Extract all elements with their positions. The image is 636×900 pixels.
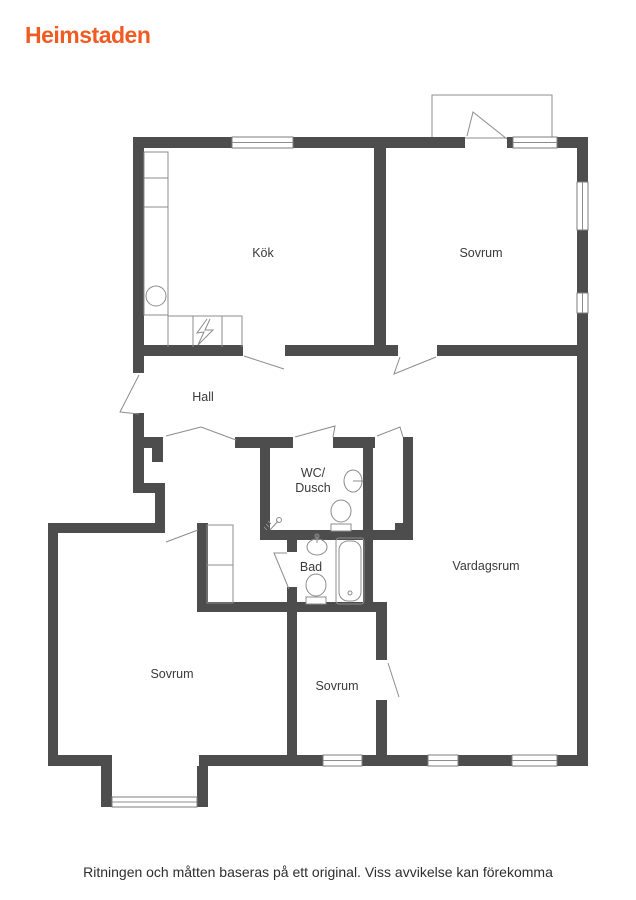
kitchen-counter [144,152,242,347]
hall-corridor-door [166,427,236,440]
window [232,137,293,148]
front-door [120,375,139,414]
window [513,137,557,148]
walls-layer [48,137,588,766]
window [323,755,362,766]
bedroom-bottom-left-door [166,530,198,542]
room-label-hall: Hall [192,390,214,404]
floorplan-page: Heimstaden [0,0,636,900]
room-label-bedroom-bottom-left: Sovrum [150,667,193,681]
kitchen-sink [146,286,166,306]
floor-plan: Kök Sovrum Hall WC/ Dusch Bad Vardagsrum… [0,0,636,900]
bedroom-bottom-middle-door [388,663,399,697]
window [577,293,588,313]
bathtub [336,538,364,604]
wc-toilet [331,500,351,531]
wardrobe [207,525,233,603]
room-label-wc-line2: Dusch [295,481,330,495]
bath-toilet [306,574,326,604]
room-label-living-room: Vardagsrum [452,559,519,573]
room-label-bedroom-top-right: Sovrum [459,246,502,260]
balcony [432,95,552,138]
bay-window [101,766,208,807]
labels-layer: Kök Sovrum Hall WC/ Dusch Bad Vardagsrum… [150,246,519,693]
closet-door [377,427,403,437]
room-label-bathroom: Bad [300,560,322,574]
stove-icon [197,319,213,345]
window [577,182,588,230]
wc-sink [344,470,363,492]
window [512,755,557,766]
disclaimer-text: Ritningen och måtten baseras på ett orig… [0,864,636,880]
window [428,755,458,766]
room-label-bedroom-bottom-middle: Sovrum [315,679,358,693]
room-label-wc-line1: WC/ [301,466,326,480]
wc-door [295,426,335,437]
kitchen-door [244,356,284,369]
bathroom-door [274,553,289,589]
bedroom-top-right-door [394,357,436,374]
room-label-kitchen: Kök [252,246,274,260]
